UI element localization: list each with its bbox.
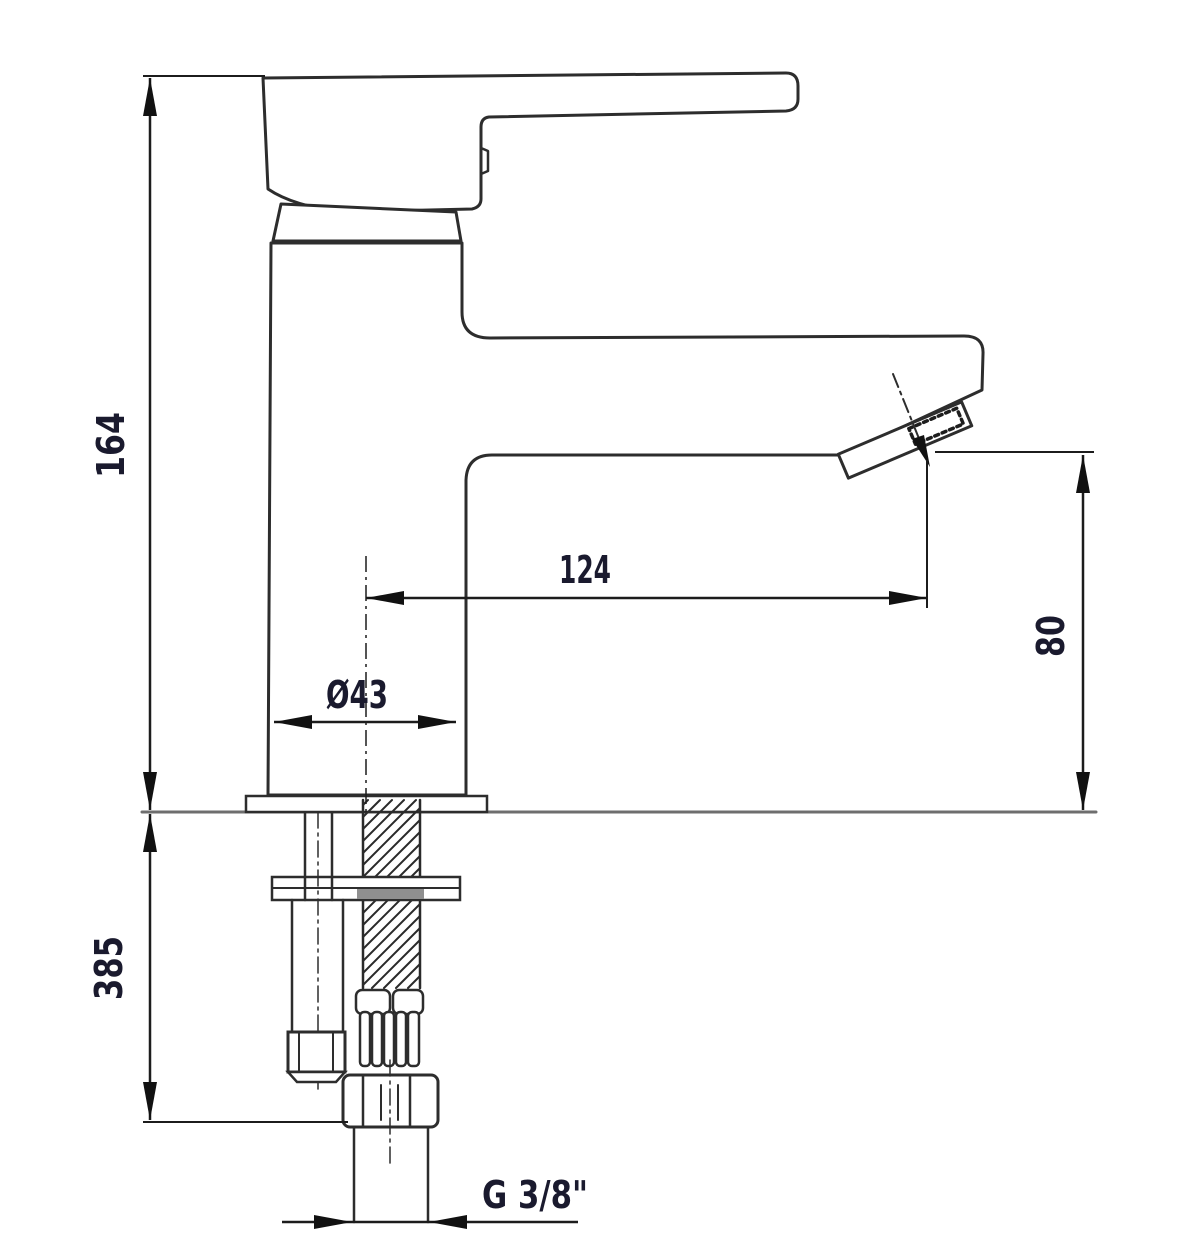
hose-fitting xyxy=(356,990,423,1066)
drawing-canvas: 164 385 124 80 Ø43 G 3/8" xyxy=(0,0,1200,1257)
connection-pipe xyxy=(354,1127,428,1222)
cartridge-collar xyxy=(273,204,461,241)
dimension-outlet-80: 80 xyxy=(935,452,1094,810)
mounting-bracket xyxy=(272,877,460,900)
label-124: 124 xyxy=(559,548,611,592)
dimension-height-164: 164 xyxy=(89,76,265,810)
label-164: 164 xyxy=(89,412,133,478)
label-80: 80 xyxy=(1029,615,1073,657)
label-thread-size: G 3/8" xyxy=(482,1173,588,1217)
mounting-hardware xyxy=(142,796,1096,1222)
bracket-hose-slot xyxy=(357,889,424,899)
faucet-lever-handle xyxy=(263,73,798,212)
label-385: 385 xyxy=(87,936,131,1000)
stud-nut xyxy=(288,1032,345,1082)
faucet-dimension-drawing: 164 385 124 80 Ø43 G 3/8" xyxy=(0,0,1200,1257)
dimension-thread-g38: G 3/8" xyxy=(282,1173,588,1229)
label-diameter-43: Ø43 xyxy=(326,673,388,717)
